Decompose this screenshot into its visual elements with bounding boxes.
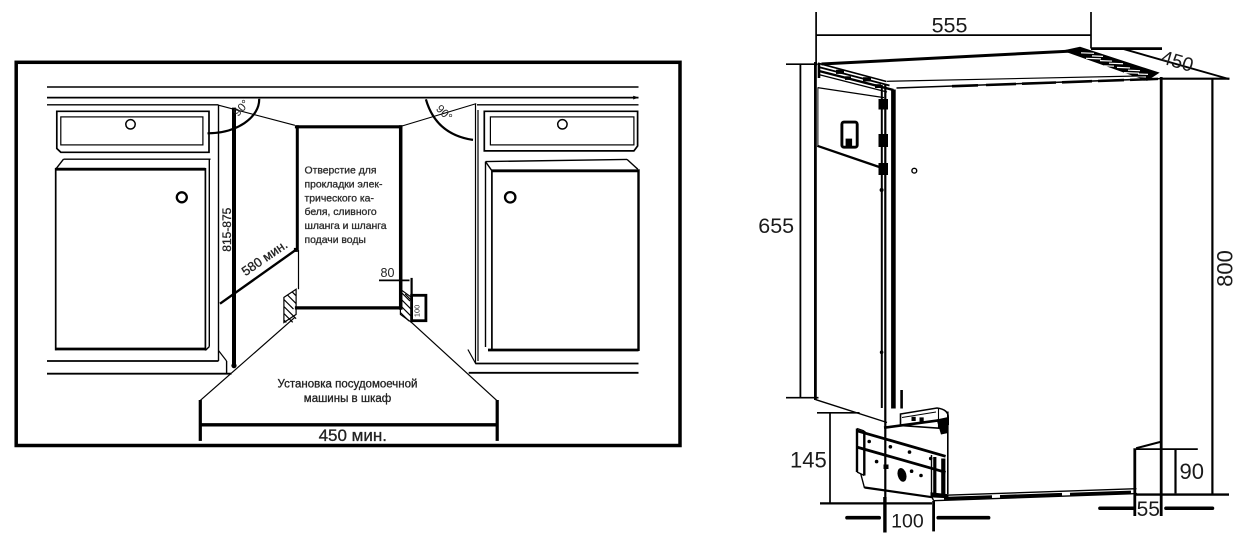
- svg-text:прокладки элек-: прокладки элек-: [305, 179, 383, 190]
- svg-text:шланга и шланга: шланга и шланга: [305, 221, 387, 232]
- svg-text:100: 100: [412, 305, 421, 318]
- svg-text:450 мин.: 450 мин.: [319, 426, 387, 445]
- svg-text:815-875: 815-875: [220, 207, 234, 251]
- svg-text:555: 555: [932, 14, 968, 38]
- svg-text:машины в шкаф: машины в шкаф: [304, 393, 391, 405]
- svg-text:655: 655: [758, 214, 794, 238]
- svg-text:450: 450: [1158, 47, 1196, 77]
- svg-text:80: 80: [381, 266, 395, 280]
- svg-text:беля, сливного: беля, сливного: [305, 206, 377, 218]
- svg-text:подачи воды: подачи воды: [305, 235, 366, 246]
- svg-text:трического ка-: трического ка-: [305, 193, 374, 204]
- svg-text:Отверстие для: Отверстие для: [305, 166, 377, 177]
- svg-text:90: 90: [1179, 459, 1203, 484]
- svg-text:55: 55: [1137, 498, 1160, 521]
- svg-text:Установка посудомоечной: Установка посудомоечной: [278, 379, 418, 391]
- svg-text:145: 145: [790, 448, 827, 473]
- svg-text:100: 100: [891, 510, 924, 532]
- svg-text:800: 800: [1213, 250, 1238, 287]
